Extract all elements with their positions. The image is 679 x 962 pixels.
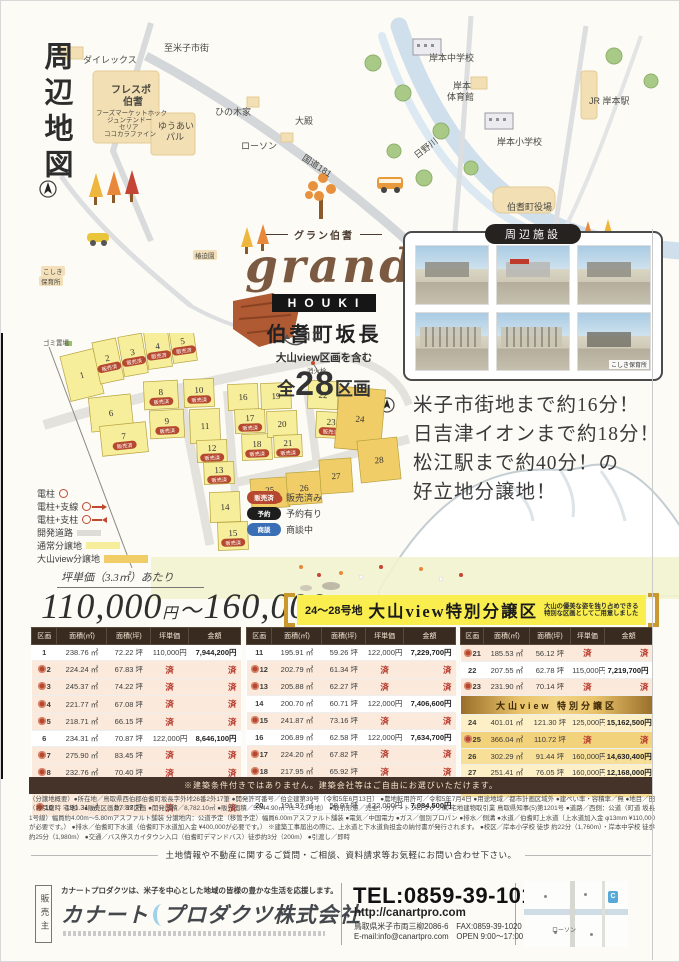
table-cell: 12 xyxy=(247,661,272,678)
pole-symbol xyxy=(59,489,68,498)
talk-status-badge: 商談 xyxy=(247,523,281,536)
table-cell: 67.82 坪 xyxy=(322,746,366,763)
legend-item: 大山view分譲地 xyxy=(37,552,148,565)
table-cell: 26 xyxy=(461,748,484,764)
table-cell: 234.31 ㎡ xyxy=(57,730,107,746)
table-cell: 21 xyxy=(461,645,484,662)
sold-icon xyxy=(251,682,259,690)
total-count: 28 xyxy=(295,365,335,404)
here-label: ココ xyxy=(299,327,323,344)
photo-caption: こしき保育所 xyxy=(609,360,649,369)
table-header-cell: 面積(㎡) xyxy=(272,628,322,645)
sold-icon xyxy=(38,751,46,759)
table-cell: 15,162,500円 xyxy=(605,715,653,731)
facilities-photo-grid: こしき保育所 xyxy=(415,245,651,371)
site-includes-note: 大山view区画を含む xyxy=(245,350,403,365)
table-cell: 済 xyxy=(151,678,189,695)
catch-line: 米子市街地まで約16分！ xyxy=(413,391,660,420)
mini-map-road xyxy=(602,881,605,947)
lot-row: 1238.76 ㎡72.22 坪110,000円7,944,200円 xyxy=(32,645,241,661)
view-note-line: 大山の優美な姿を独り占めできる xyxy=(544,603,638,611)
table-cell: 済 xyxy=(403,678,455,695)
view-lot-range: 24〜28号地 xyxy=(305,602,362,618)
table-cell: 302.29 ㎡ xyxy=(484,748,530,764)
table-cell: 122,000円 xyxy=(151,730,189,746)
map-label: 伯耆 xyxy=(123,93,143,108)
table-cell: 済 xyxy=(605,731,653,748)
normal-symbol xyxy=(86,542,120,549)
table-cell: 3 xyxy=(32,678,57,695)
table-cell: 済 xyxy=(151,747,189,764)
view-special-banner: 24〜28号地 大山view特別分譲区 大山の優美な姿を独り占めできる 特別な区… xyxy=(284,593,659,627)
table-cell: 7,219,700円 xyxy=(605,662,653,678)
table-cell: 110.72 坪 xyxy=(530,731,570,748)
table-cell: 済 xyxy=(403,661,455,678)
lot-row: 14200.70 ㎡60.71 坪122,000円7,406,600円 xyxy=(247,696,456,712)
catch-line: 好立地分譲地！ xyxy=(413,478,660,507)
sold-icon xyxy=(38,665,46,673)
map-label: パル xyxy=(166,130,184,143)
sold-icon xyxy=(251,767,259,775)
table-cell: 13 xyxy=(247,678,272,695)
table-cell: 済 xyxy=(188,661,240,678)
legend-item: 電柱+支柱 xyxy=(37,513,148,526)
table-cell: 17 xyxy=(247,746,272,763)
sold-status-badge: 販売済 xyxy=(247,491,281,504)
badge-label: 販売済み xyxy=(286,491,322,504)
lot-row: 17224.20 ㎡67.82 坪済済 xyxy=(247,746,456,763)
dash-decoration xyxy=(266,234,288,235)
logo-houki-bar: HOUKI xyxy=(272,294,377,312)
map-label: JR 岸本駅 xyxy=(589,94,630,107)
facility-photo xyxy=(496,245,570,305)
table-cell: 218.71 ㎡ xyxy=(57,713,107,730)
total-suffix: 区画 xyxy=(335,375,371,401)
badge-label: 商談中 xyxy=(286,523,313,536)
view-note-line: 特別な区画としてご用意しました xyxy=(544,610,638,618)
sold-icon xyxy=(38,682,46,690)
table-cell: 22 xyxy=(461,662,484,678)
view-banner-body: 24〜28号地 大山view特別分譲区 大山の優美な姿を独り占めできる 特別な区… xyxy=(297,595,646,625)
legend-item: 電柱+支線 xyxy=(37,500,148,513)
table-cell: 1 xyxy=(32,645,57,661)
table-cell: 7,944,200円 xyxy=(188,645,240,661)
bracket-icon xyxy=(284,593,295,627)
table-cell: 74.22 坪 xyxy=(107,678,151,695)
table-cell: 72.22 坪 xyxy=(107,645,151,661)
table-header-cell: 坪単価 xyxy=(151,628,189,645)
map-label: 国道181 xyxy=(300,151,335,180)
facility-photo: こしき保育所 xyxy=(577,312,651,372)
lot-row: 2224.24 ㎡67.83 坪済済 xyxy=(32,661,241,678)
map-label: こしき xyxy=(41,266,65,276)
facilities-panel: 周辺施設 こしき保育所 xyxy=(403,231,663,381)
reserve-status-badge: 予約 xyxy=(247,507,281,520)
table-cell: 8,646,100円 xyxy=(188,730,240,746)
table-cell: 62.78 坪 xyxy=(530,662,570,678)
logo-block: グラン伯耆 grand HOUKI 伯耆町坂長 大山view区画を含む 全 28… xyxy=(245,227,403,404)
legend-label: 大山view分譲地 xyxy=(37,552,100,565)
sold-icon xyxy=(251,716,259,724)
table-cell: 11 xyxy=(247,645,272,661)
yen-unit: 円 xyxy=(162,606,177,622)
map-label: 椿迫園 xyxy=(193,250,217,260)
table-header-cell: 金額 xyxy=(403,628,455,645)
map-label: 体育館 xyxy=(447,90,474,103)
table-header-cell: 区画 xyxy=(461,628,484,645)
legend-label: 通常分譲地 xyxy=(37,539,82,552)
table-cell: 済 xyxy=(570,678,605,695)
table-cell: 202.79 ㎡ xyxy=(272,661,322,678)
lot-row: 24401.01 ㎡121.30 坪125,000円15,162,500円 xyxy=(461,715,653,731)
pole-strut-symbol xyxy=(82,515,107,524)
bracket-icon xyxy=(648,593,659,627)
table-cell: 済 xyxy=(570,645,605,662)
table-cell: 238.76 ㎡ xyxy=(57,645,107,661)
table-cell: 済 xyxy=(366,661,404,678)
catchphrase: 米子市街地まで約16分！ 日吉津イオンまで約18分！ 松江駅まで約40分！の 好… xyxy=(413,391,660,507)
inquiry-text: 土地情報や不動産に関するご質問・ご相談、資料請求等お気軽にお問い合わせ下さい。 xyxy=(166,849,517,861)
mini-map-road xyxy=(524,909,628,915)
legend-badge-item: 商談商談中 xyxy=(247,521,367,537)
table-cell: 122,000円 xyxy=(366,729,404,745)
lot-row: 7275.90 ㎡83.45 坪済済 xyxy=(32,747,241,764)
scan-edge-artifact xyxy=(1,333,3,779)
table-cell: 済 xyxy=(151,696,189,713)
lot-price-table: 区画面積(㎡)面積(坪)坪単価金額21185.53 ㎡56.12 坪済済2220… xyxy=(460,627,653,798)
map-label: ダイレックス xyxy=(83,53,137,66)
table-cell: 済 xyxy=(605,678,653,695)
table-cell: 221.77 ㎡ xyxy=(57,696,107,713)
lot-row: 4221.77 ㎡67.08 坪済済 xyxy=(32,696,241,713)
table-header-cell: 坪単価 xyxy=(570,628,605,645)
road-symbol xyxy=(77,530,101,536)
badge-label: 予約有り xyxy=(286,507,322,520)
facility-photo xyxy=(415,245,489,305)
table-cell: 済 xyxy=(605,645,653,662)
lot-row: 21185.53 ㎡56.12 坪済済 xyxy=(461,645,653,662)
facility-photo xyxy=(415,312,489,372)
table-cell: 91.44 坪 xyxy=(530,748,570,764)
table-cell: 67.83 坪 xyxy=(107,661,151,678)
table-cell: 済 xyxy=(151,661,189,678)
table-cell: 7,634,700円 xyxy=(403,729,455,745)
sold-icon xyxy=(464,682,472,690)
facility-photo xyxy=(577,245,651,305)
tilde: 〜 xyxy=(177,598,203,623)
logo-script-text: grand xyxy=(245,242,403,292)
table-cell: 245.37 ㎡ xyxy=(57,678,107,695)
flyer-page: 12販売済3販売済4販売済5販売済67販売済8販売済9販売済10販売済1112販… xyxy=(0,0,679,962)
mini-map-lawson-label: ローソン xyxy=(552,925,576,934)
table-cell: 7,229,700円 xyxy=(403,645,455,661)
table-header-cell: 金額 xyxy=(188,628,240,645)
table-header-cell: 区画 xyxy=(247,628,272,645)
table-cell: 121.30 坪 xyxy=(530,715,570,731)
table-cell: 67.08 坪 xyxy=(107,696,151,713)
table-header-cell: 面積(坪) xyxy=(107,628,151,645)
sold-icon xyxy=(464,649,472,657)
facilities-title: 周辺施設 xyxy=(485,224,581,244)
sold-icon xyxy=(251,750,259,758)
legend-label: 開発道路 xyxy=(37,526,73,539)
table-cell: 125,000円 xyxy=(570,715,605,731)
table-cell: 61.34 坪 xyxy=(322,661,366,678)
lot-row: 5218.71 ㎡66.15 坪済済 xyxy=(32,713,241,730)
map-legend: 電柱電柱+支線電柱+支柱開発道路通常分譲地大山view分譲地 販売済販売済み予約… xyxy=(37,487,148,565)
map-label: ココカラファイン xyxy=(104,128,156,138)
table-cell: 15 xyxy=(247,712,272,729)
table-cell: 7,406,600円 xyxy=(403,696,455,712)
table-cell: 122,000円 xyxy=(366,696,404,712)
total-lots-line: 全 28 区画 xyxy=(245,365,403,404)
company-name-1: カナート xyxy=(61,904,149,927)
table-cell: 224.24 ㎡ xyxy=(57,661,107,678)
sold-icon xyxy=(38,700,46,708)
page-edge-line xyxy=(652,229,653,960)
table-cell: 224.20 ㎡ xyxy=(272,746,322,763)
table-cell: 済 xyxy=(366,678,404,695)
map-label: 至米子市街 xyxy=(164,41,209,54)
legend-status-badges: 販売済販売済み予約予約有り商談商談中 xyxy=(247,489,367,537)
table-cell: 200.70 ㎡ xyxy=(272,696,322,712)
site-location-title: 伯耆町坂長 xyxy=(245,318,403,347)
mini-map-road xyxy=(570,881,575,947)
lot-row: 22207.55 ㎡62.78 坪115,000円7,219,700円 xyxy=(461,662,653,678)
legend-label: 電柱+支線 xyxy=(37,500,78,513)
table-cell: 401.01 ㎡ xyxy=(484,715,530,731)
view-banner-note: 大山の優美な姿を独り占めできる 特別な区画としてご用意しました xyxy=(544,603,638,618)
price-from: 110,000 xyxy=(41,586,162,626)
legend-label: 電柱 xyxy=(37,487,55,500)
table-cell: 7 xyxy=(32,747,57,764)
lot-row: 25366.04 ㎡110.72 坪済済 xyxy=(461,731,653,748)
table-cell: 4 xyxy=(32,696,57,713)
pole-arrow-symbol xyxy=(82,502,107,511)
table-cell: 231.90 ㎡ xyxy=(484,678,530,695)
legend-item: 電柱 xyxy=(37,487,148,500)
table-cell: 241.87 ㎡ xyxy=(272,712,322,729)
table-header-cell: 面積(㎡) xyxy=(484,628,530,645)
legend-label: 電柱+支柱 xyxy=(37,513,78,526)
table-cell: 済 xyxy=(403,746,455,763)
table-cell: 62.58 坪 xyxy=(322,729,366,745)
total-prefix: 全 xyxy=(277,375,295,401)
catch-line: 松江駅まで約40分！の xyxy=(413,449,660,478)
lot-row: 12202.79 ㎡61.34 坪済済 xyxy=(247,661,456,678)
table-cell: 59.26 坪 xyxy=(322,645,366,661)
table-header-cell: 面積(㎡) xyxy=(57,628,107,645)
map-label: ローソン xyxy=(241,139,277,152)
map-label: 日野川 xyxy=(411,134,440,161)
table-cell: 115,000円 xyxy=(570,662,605,678)
table-cell: 62.27 坪 xyxy=(322,678,366,695)
lot-row: 6234.31 ㎡70.87 坪122,000円8,646,100円 xyxy=(32,730,241,746)
lot-row: 11195.91 ㎡59.26 坪122,000円7,229,700円 xyxy=(247,645,456,661)
table-cell: 済 xyxy=(366,712,404,729)
legend-item: 通常分譲地 xyxy=(37,539,148,552)
table-cell: 14 xyxy=(247,696,272,712)
table-cell: 済 xyxy=(570,731,605,748)
office-map-pin: C xyxy=(608,891,618,903)
seller-label: 販売主 xyxy=(35,885,52,943)
table-cell: 206.89 ㎡ xyxy=(272,729,322,745)
table-cell: 60.71 坪 xyxy=(322,696,366,712)
view-subheader-row: 大山view 特別分譲区 xyxy=(461,696,653,715)
legend-symbols: 電柱電柱+支線電柱+支柱開発道路通常分譲地大山view分譲地 xyxy=(37,487,148,565)
table-cell: 済 xyxy=(188,696,240,713)
table-header-cell: 金額 xyxy=(605,628,653,645)
phone-number: TEL:0859-39-1010 xyxy=(353,883,547,909)
facility-photo xyxy=(496,312,570,372)
table-cell: 275.90 ㎡ xyxy=(57,747,107,764)
table-cell: 済 xyxy=(151,713,189,730)
company-name-2: プロダクツ株式会社 xyxy=(163,904,361,927)
lot-row: 13205.88 ㎡62.27 坪済済 xyxy=(247,678,456,695)
lot-row: 26302.29 ㎡91.44 坪160,000円14,630,400円 xyxy=(461,748,653,764)
sold-icon xyxy=(464,735,472,743)
website-url[interactable]: http://canartpro.com xyxy=(354,907,466,919)
table-header-cell: 面積(坪) xyxy=(322,628,366,645)
table-cell: 66.15 坪 xyxy=(107,713,151,730)
table-header-cell: 面積(坪) xyxy=(530,628,570,645)
table-cell: 済 xyxy=(188,678,240,695)
sold-icon xyxy=(251,665,259,673)
table-cell: 済 xyxy=(188,747,240,764)
table-cell: 122,000円 xyxy=(366,645,404,661)
table-cell: 110,000円 xyxy=(151,645,189,661)
table-cell: 73.16 坪 xyxy=(322,712,366,729)
divider-line xyxy=(525,855,652,856)
table-cell: 済 xyxy=(188,713,240,730)
page-title: 周辺地図 xyxy=(35,41,77,185)
dash-decoration xyxy=(360,234,382,235)
no-building-conditions-banner: ※建築条件付きではありません。建築会社等はご自由にお選びいただけます。 xyxy=(29,777,653,794)
map-label: 大殿 xyxy=(295,114,313,127)
map-label: ゴミ置場 xyxy=(43,337,69,347)
table-cell: 195.91 ㎡ xyxy=(272,645,322,661)
table-cell: 56.12 坪 xyxy=(530,645,570,662)
legend-item: 開発道路 xyxy=(37,526,148,539)
table-cell: 2 xyxy=(32,661,57,678)
table-cell: 160,000円 xyxy=(570,748,605,764)
catch-line: 日吉津イオンまで約18分！ xyxy=(413,420,660,449)
sold-icon xyxy=(38,717,46,725)
table-cell: 5 xyxy=(32,713,57,730)
table-cell: 25 xyxy=(461,731,484,748)
company-tagline: カナートプロダクツは、米子を中心とした地域の皆様の豊かな生活を応援します。 xyxy=(61,885,338,896)
lot-row: 3245.37 ㎡74.22 坪済済 xyxy=(32,678,241,695)
map-label: ひの木家 xyxy=(215,105,251,118)
license-text-illegible xyxy=(63,931,325,936)
map-label: 岸本小学校 xyxy=(497,135,542,148)
table-cell: 24 xyxy=(461,715,484,731)
company-logo: カナートプロダクツ株式会社 xyxy=(61,899,361,929)
table-header-cell: 区画 xyxy=(32,628,57,645)
lot-row: 16206.89 ㎡62.58 坪122,000円7,634,700円 xyxy=(247,729,456,745)
legend-badge-item: 販売済販売済み xyxy=(247,489,367,505)
table-cell: 205.88 ㎡ xyxy=(272,678,322,695)
table-header-cell: 坪単価 xyxy=(366,628,404,645)
map-label: 岸本中学校 xyxy=(429,51,474,64)
lot-row: 15241.87 ㎡73.16 坪済済 xyxy=(247,712,456,729)
view-symbol xyxy=(104,555,148,563)
table-cell: 23 xyxy=(461,678,484,695)
legend-badge-item: 予約予約有り xyxy=(247,505,367,521)
table-cell: 70.14 坪 xyxy=(530,678,570,695)
property-outline-fine-print: （分譲地概要）●所在地／鳥取県西伯郡伯耆町坂長字外垰26番2外17筆 ●開発許可… xyxy=(29,795,655,842)
contact-divider xyxy=(341,883,342,945)
table-cell: 207.55 ㎡ xyxy=(484,662,530,678)
table-cell: 366.04 ㎡ xyxy=(484,731,530,748)
divider-line xyxy=(31,855,158,856)
sold-icon xyxy=(38,768,46,776)
price-table-lots-21-28: 区画面積(㎡)面積(坪)坪単価金額21185.53 ㎡56.12 坪済済2220… xyxy=(460,627,653,798)
view-banner-title: 大山view特別分譲区 xyxy=(368,598,538,622)
inquiry-divider: 土地情報や不動産に関するご質問・ご相談、資料請求等お気軽にお問い合わせ下さい。 xyxy=(31,849,651,861)
table-cell: 14,630,400円 xyxy=(605,748,653,764)
map-label: 伯耆町役場 xyxy=(507,200,552,213)
office-mini-map: C ローソン xyxy=(524,881,628,947)
table-cell: 185.53 ㎡ xyxy=(484,645,530,662)
lot-row: 23231.90 ㎡70.14 坪済済 xyxy=(461,678,653,695)
table-cell: 6 xyxy=(32,730,57,746)
table-cell: 83.45 坪 xyxy=(107,747,151,764)
table-cell: 済 xyxy=(403,712,455,729)
table-cell: 16 xyxy=(247,729,272,745)
table-cell: 済 xyxy=(366,746,404,763)
table-cell: 70.87 坪 xyxy=(107,730,151,746)
map-label: 保育所 xyxy=(39,276,63,286)
